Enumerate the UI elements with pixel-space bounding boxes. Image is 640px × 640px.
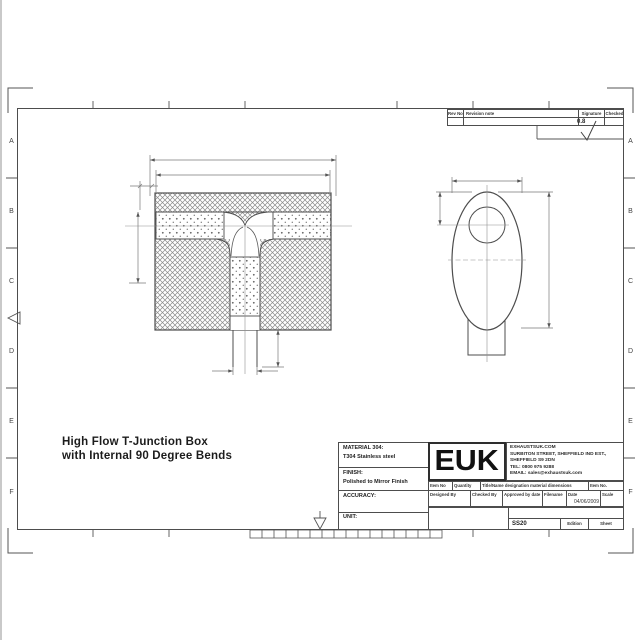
- zone-letter-right-e: E: [626, 418, 635, 425]
- drawing-title-line2: with Internal 90 Degree Bends: [62, 450, 232, 462]
- material-label: MATERIAL 304:: [343, 445, 383, 452]
- titleblock-divider-3: [338, 512, 429, 513]
- filename-label: Filename: [544, 492, 566, 498]
- finish-label: FINISH:: [343, 470, 363, 477]
- revision-header-signature: Signature: [579, 111, 604, 117]
- material-value: T304 Stainless steel: [343, 454, 395, 461]
- zone-letter-left-f: F: [7, 489, 16, 496]
- sign-row-line-2: [502, 490, 503, 507]
- designed-by-label: Designed By: [430, 492, 469, 498]
- address-line-5: EMAIL: sales@exhaustsuk.com: [510, 471, 623, 478]
- titleblock-bottom-left-cell: [428, 507, 509, 530]
- item-header-quantity: Quantity: [454, 483, 481, 489]
- address-line-3: SHEFFIELD S9 2DN: [510, 458, 623, 465]
- titleblock-divider-1: [338, 467, 429, 468]
- item-header-item-no-2: Item No.: [590, 483, 623, 489]
- unit-label: UNIT:: [343, 514, 357, 521]
- date-value: 04/06/2009: [566, 499, 599, 505]
- sign-row-line-5: [600, 490, 601, 507]
- edition-label: Edition: [560, 521, 589, 527]
- zone-letter-left-d: D: [7, 348, 16, 355]
- zone-letter-left-b: B: [7, 208, 16, 215]
- scale-label: Scale: [602, 492, 623, 498]
- drawing-title-line1: High Flow T-Junction Box: [62, 436, 208, 448]
- revision-table-header-divider: [447, 117, 624, 118]
- company-address-box: EXHAUSTSUK.COM SURBITON STREET, SHEFFIEL…: [506, 442, 624, 481]
- sign-row-line-1: [470, 490, 471, 507]
- date-label: Date: [568, 492, 599, 498]
- item-header-designation: Title/Name designation material dimensio…: [482, 483, 588, 489]
- zone-letter-right-d: D: [626, 348, 635, 355]
- zone-letter-right-b: B: [626, 208, 635, 215]
- zone-letter-right-c: C: [626, 278, 635, 285]
- accuracy-label: ACCURACY:: [343, 493, 376, 500]
- graphic-scale-bar: [250, 530, 442, 538]
- scan-edge-shadow: [0, 0, 2, 640]
- zone-letter-right-f: F: [626, 489, 635, 496]
- surface-finish-value: 0.8: [577, 119, 585, 125]
- item-header-item-no: Item No: [430, 483, 452, 489]
- revision-header-rev-no: Rev No: [448, 111, 463, 117]
- revision-header-checked: Checked: [605, 111, 624, 117]
- company-logo-text: EUK: [435, 445, 499, 478]
- approved-by-label: Approved by date: [504, 492, 542, 498]
- address-line-1: EXHAUSTSUK.COM: [510, 445, 623, 452]
- revision-header-note: Revision note: [466, 111, 556, 117]
- sign-row-line-3: [542, 490, 543, 507]
- zone-letter-left-c: C: [7, 278, 16, 285]
- drawing-sheet-page: { "frame": { "row_labels": ["A", "B", "C…: [0, 0, 640, 640]
- sheet-label: Sheet: [588, 521, 624, 527]
- finish-value: Polished to Mirror Finish: [343, 479, 408, 486]
- zone-letter-right-a: A: [626, 138, 635, 145]
- revision-table-col-line-1: [463, 109, 464, 126]
- zone-letter-left-a: A: [7, 138, 16, 145]
- filename-value: SS20: [512, 521, 527, 527]
- zone-letter-left-e: E: [7, 418, 16, 425]
- titleblock-divider-2: [338, 490, 429, 491]
- company-logo-box: EUK: [428, 442, 506, 481]
- checked-by-label: Checked By: [472, 492, 501, 498]
